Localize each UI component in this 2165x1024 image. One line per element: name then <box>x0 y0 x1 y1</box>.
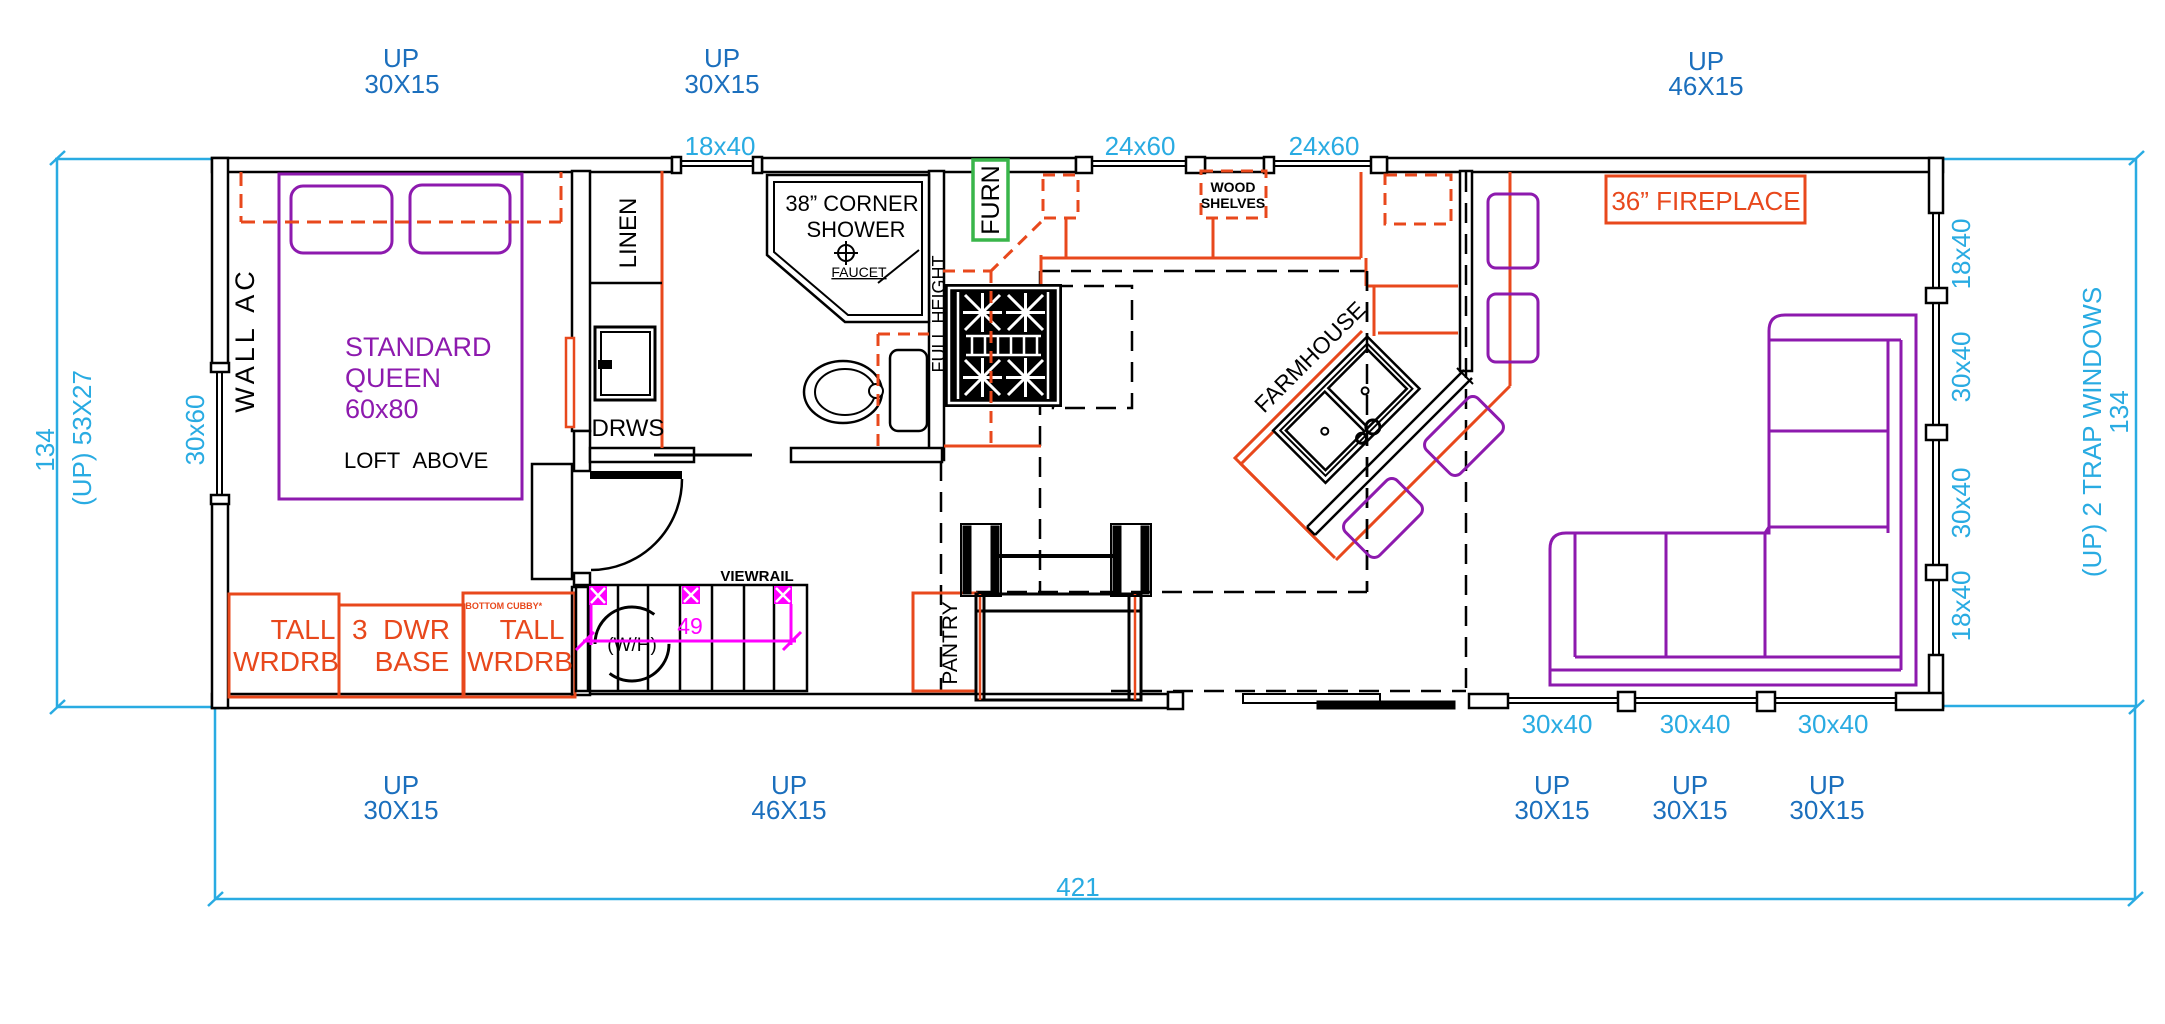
svg-text:WRDRB: WRDRB <box>467 646 573 677</box>
svg-text:421: 421 <box>1056 872 1099 902</box>
svg-text:LINEN: LINEN <box>615 198 642 269</box>
svg-text:WOOD: WOOD <box>1210 179 1255 195</box>
svg-text:18x40: 18x40 <box>685 131 756 161</box>
svg-text:(UP) 53X27: (UP) 53X27 <box>67 370 97 506</box>
svg-text:46X15: 46X15 <box>751 795 826 825</box>
svg-text:(W/H): (W/H) <box>607 635 657 656</box>
svg-text:134: 134 <box>30 428 60 471</box>
svg-text:30X15: 30X15 <box>1652 795 1727 825</box>
svg-text:36” FIREPLACE: 36” FIREPLACE <box>1611 186 1800 216</box>
svg-text:30x40: 30x40 <box>1522 709 1593 739</box>
svg-text:24x60: 24x60 <box>1105 131 1176 161</box>
svg-text:STANDARD: STANDARD <box>345 332 492 362</box>
svg-text:49: 49 <box>677 613 703 639</box>
svg-text:SHELVES: SHELVES <box>1201 195 1265 211</box>
svg-text:BASE: BASE <box>375 646 450 677</box>
svg-text:30x40: 30x40 <box>1660 709 1731 739</box>
svg-text:38” CORNER: 38” CORNER <box>785 191 918 216</box>
svg-text:FURN: FURN <box>977 165 1005 234</box>
svg-text:30X15: 30X15 <box>1514 795 1589 825</box>
svg-text:18x40: 18x40 <box>1946 219 1976 290</box>
svg-text:WALL AC: WALL AC <box>230 267 260 413</box>
svg-text:30x60: 30x60 <box>180 395 210 466</box>
svg-text:(UP) 2 TRAP WINDOWS: (UP) 2 TRAP WINDOWS <box>2077 287 2107 577</box>
svg-text:18x40: 18x40 <box>1946 571 1976 642</box>
svg-text:LOFT ABOVE: LOFT ABOVE <box>344 448 488 473</box>
svg-text:30X15: 30X15 <box>1789 795 1864 825</box>
svg-text:134: 134 <box>2104 390 2134 433</box>
svg-text:24x60: 24x60 <box>1289 131 1360 161</box>
svg-text:WRDRB: WRDRB <box>233 646 339 677</box>
svg-text:VIEWRAIL: VIEWRAIL <box>720 568 793 585</box>
svg-text:3 DWR: 3 DWR <box>352 614 450 645</box>
svg-text:30X15: 30X15 <box>363 795 438 825</box>
svg-text:30x40: 30x40 <box>1946 332 1976 403</box>
svg-text:QUEEN: QUEEN <box>345 363 441 393</box>
svg-text:*BOTTOM CUBBY*: *BOTTOM CUBBY* <box>462 601 543 611</box>
svg-text:FAUCET: FAUCET <box>831 264 887 280</box>
svg-text:60x80: 60x80 <box>345 394 419 424</box>
svg-text:SHOWER: SHOWER <box>807 217 906 242</box>
svg-text:TALL: TALL <box>500 614 565 645</box>
svg-text:30x40: 30x40 <box>1798 709 1869 739</box>
svg-text:30x40: 30x40 <box>1946 468 1976 539</box>
svg-text:46X15: 46X15 <box>1668 71 1743 101</box>
svg-text:TALL: TALL <box>271 614 336 645</box>
svg-text:30X15: 30X15 <box>364 69 439 99</box>
svg-text:PANTRY: PANTRY <box>939 601 962 684</box>
svg-text:30X15: 30X15 <box>684 69 759 99</box>
svg-text:DRWS: DRWS <box>592 415 665 442</box>
